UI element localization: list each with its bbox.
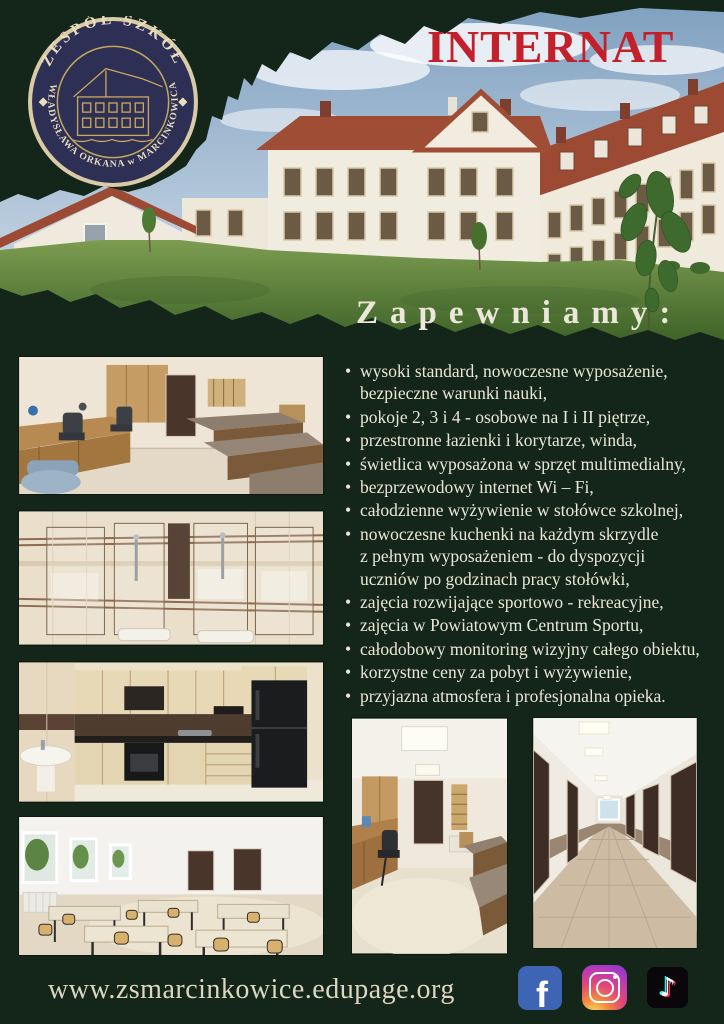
feature-item: pokoje 2, 3 i 4 - osobowe na I i II pięt…: [343, 406, 715, 428]
photo-kitchen: [19, 662, 323, 802]
school-crest-icon: ZESPÓŁ SZKÓŁ im. WŁADYSŁAWA ORKANA w MAR…: [27, 16, 199, 188]
internat-poster: ZESPÓŁ SZKÓŁ im. WŁADYSŁAWA ORKANA w MAR…: [0, 0, 724, 1024]
facebook-f-glyph: f: [536, 980, 548, 1010]
feature-item: korzystne ceny za pobyt i wyżywienie,: [343, 661, 715, 683]
facebook-icon[interactable]: f: [518, 966, 562, 1010]
photo-bedroom: [19, 357, 323, 494]
feature-item: zajęcia rozwijające sportowo - rekreacyj…: [343, 591, 715, 613]
tiktok-note-glyph: ♪: [659, 975, 676, 1001]
photo-dorm-room: [352, 718, 507, 954]
feature-item: przyjazna atmosfera i profesjonalna opie…: [343, 685, 715, 707]
poster-title: INTERNAT: [427, 20, 674, 73]
feature-item: całodobowy monitoring wizyjny całego obi…: [343, 638, 715, 660]
feature-item: wysoki standard, nowoczesne wyposażenie,…: [343, 360, 715, 405]
feature-item: świetlica wyposażona w sprzęt multimedia…: [343, 453, 715, 475]
tiktok-icon[interactable]: ♪: [647, 967, 688, 1008]
instagram-camera-dot: [613, 975, 617, 979]
photo-bathroom: [19, 511, 323, 645]
features-list: wysoki standard, nowoczesne wyposażenie,…: [343, 360, 715, 708]
feature-item: zajęcia w Powiatowym Centrum Sportu,: [343, 614, 715, 636]
feature-item: przestronne łazienki i korytarze, winda,: [343, 429, 715, 451]
school-logo: ZESPÓŁ SZKÓŁ im. WŁADYSŁAWA ORKANA w MAR…: [27, 16, 199, 188]
hero-photo: ZESPÓŁ SZKÓŁ im. WŁADYSŁAWA ORKANA w MAR…: [0, 0, 724, 345]
photo-dining-room: [19, 817, 323, 955]
instagram-camera-lens: [596, 979, 614, 997]
feature-item: bezprzewodowy internet Wi – Fi,: [343, 476, 715, 498]
feature-item: nowoczesne kuchenki na każdym skrzydle z…: [343, 523, 715, 590]
photo-corridor: [533, 718, 697, 948]
instagram-icon[interactable]: [582, 965, 627, 1010]
website-url: www.zsmarcinkowice.edupage.org: [48, 974, 455, 1006]
social-icons: f ♪: [518, 965, 688, 1010]
feature-item: całodzienne wyżywienie w stołówce szkoln…: [343, 499, 715, 521]
section-heading: Zapewniamy:: [356, 295, 682, 332]
